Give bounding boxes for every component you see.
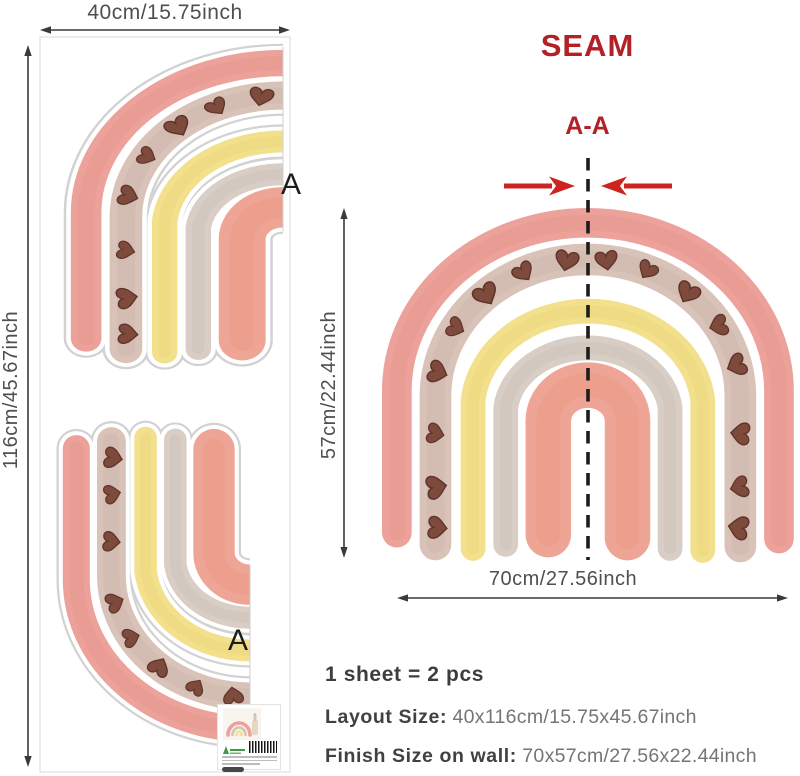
seam-section-label: A-A <box>480 112 695 141</box>
label-text-line <box>222 756 277 758</box>
spec-block: 1 sheet = 2 pcs Layout Size: 40x116cm/15… <box>325 663 757 776</box>
rainbow-width-dimension: 70cm/27.56inch <box>428 568 698 591</box>
rainbow-height-dimension: 57cm/22.44inch <box>318 300 340 470</box>
rainbow-width-arrow <box>397 594 788 601</box>
rainbow-height-arrow <box>340 208 347 558</box>
finish-size-label: Finish Size on wall: <box>325 745 517 767</box>
seam-arrow-right <box>601 177 672 196</box>
layout-size-value: 40x116cm/15.75x45.67inch <box>452 706 696 728</box>
sheet-height-arrow <box>24 45 31 767</box>
seam-title: SEAM <box>480 28 695 64</box>
label-text-line <box>222 763 260 765</box>
label-pill <box>222 767 244 772</box>
layout-size-label: Layout Size: <box>325 706 447 728</box>
sheet-height-dimension: 116cm/45.67inch <box>0 310 22 470</box>
product-label <box>217 704 281 770</box>
sheet-width-arrow <box>40 26 290 33</box>
finish-size-row: Finish Size on wall: 70x57cm/27.56x22.44… <box>325 745 757 768</box>
piece-bottom-seam-label: A <box>228 624 248 658</box>
barcode <box>249 741 277 753</box>
layout-size-row: Layout Size: 40x116cm/15.75x45.67inch <box>325 706 757 729</box>
label-thumbnail <box>223 708 261 740</box>
rainbow-decal-size-diagram: 40cm/15.75inch 116cm/45.67inch A A SEAM … <box>0 0 800 776</box>
pieces-per-sheet-text: 1 sheet = 2 pcs <box>325 663 757 687</box>
label-text-line <box>222 760 277 762</box>
brand-logo <box>222 742 246 752</box>
seam-arrow-left <box>504 177 575 196</box>
finish-size-value: 70x57cm/27.56x22.44inch <box>522 745 757 767</box>
sheet-width-dimension: 40cm/15.75inch <box>40 1 290 25</box>
piece-top-seam-label: A <box>281 168 301 202</box>
